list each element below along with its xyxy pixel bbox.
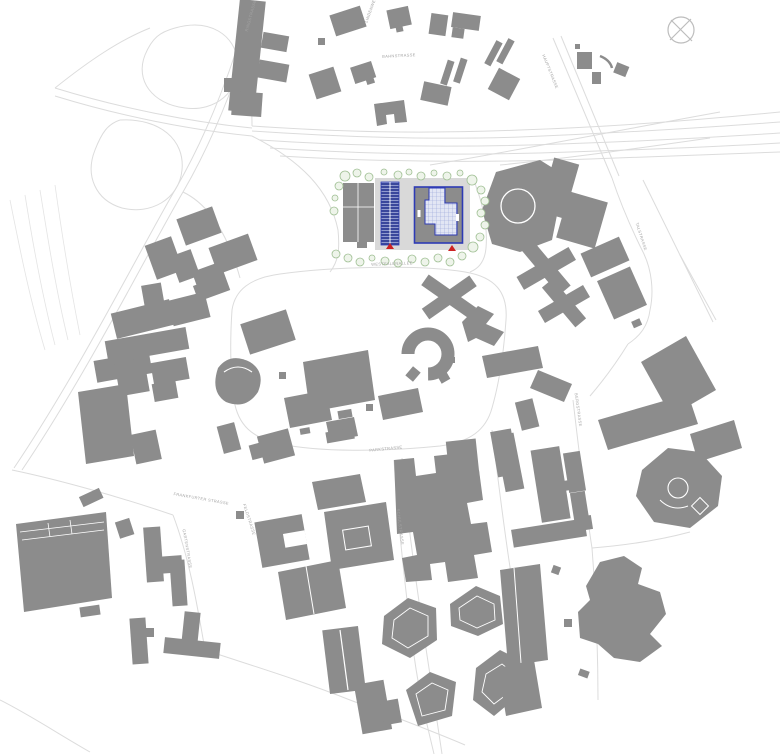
building: [592, 72, 601, 84]
building: [577, 52, 592, 69]
building: [146, 628, 154, 637]
building: [482, 346, 543, 378]
tree-icon: [434, 254, 442, 262]
road: [680, 255, 716, 320]
building: [406, 672, 456, 726]
building: [279, 372, 286, 379]
tree-icon: [356, 258, 364, 266]
building: [79, 488, 104, 507]
tree-icon: [417, 172, 425, 180]
building: [257, 60, 290, 83]
building: [240, 309, 296, 354]
tree-icon: [332, 195, 338, 201]
street-label: PARKSTRASSE: [369, 444, 402, 452]
street-label: LINDENWEG: [364, 0, 378, 23]
building: [224, 78, 236, 92]
street-label: TALSTRASSE: [635, 222, 649, 251]
building: [500, 564, 548, 666]
road: [643, 180, 713, 322]
tree-icon: [421, 258, 429, 266]
building: [382, 598, 437, 658]
tree-icon: [332, 250, 340, 258]
tree-icon: [446, 258, 454, 266]
tree-icon: [330, 207, 338, 215]
street-label: FRANKFURTER STRASSE: [173, 491, 229, 506]
rail-line: [40, 190, 68, 340]
street-label: WESTFALENALLEE: [371, 260, 413, 266]
building: [284, 390, 332, 428]
tree-icon: [458, 252, 466, 260]
tree-icon: [431, 170, 437, 176]
tree-icon: [394, 171, 402, 179]
building: [169, 559, 187, 606]
tree-icon: [365, 173, 373, 181]
building: [181, 611, 200, 644]
building: [515, 398, 539, 430]
building: [449, 357, 455, 363]
building: [79, 605, 100, 618]
building: [278, 560, 346, 620]
project-site: [343, 178, 470, 251]
compass-north-icon: [668, 17, 694, 43]
building: [600, 56, 612, 68]
road: [55, 96, 252, 136]
tree-icon: [353, 169, 361, 177]
tree-icon: [406, 169, 412, 175]
rail-line: [10, 200, 45, 350]
road: [91, 120, 182, 210]
building: [236, 511, 244, 519]
road: [142, 25, 238, 108]
building: [324, 502, 394, 570]
building: [176, 206, 221, 245]
building: [405, 366, 420, 382]
building: [217, 422, 242, 454]
rail-line: [25, 195, 55, 345]
building: [429, 13, 449, 36]
tree-icon: [477, 209, 485, 217]
building: [231, 91, 263, 117]
railway-lines: [10, 185, 80, 350]
building: [578, 556, 666, 662]
tree-icon: [443, 172, 451, 180]
building: [450, 586, 503, 636]
building: [150, 357, 189, 385]
rail-line: [55, 185, 80, 335]
building: [636, 448, 722, 528]
tree-icon: [344, 254, 352, 262]
building: [300, 427, 311, 435]
building: [318, 38, 325, 45]
building: [129, 617, 148, 664]
road: [55, 28, 150, 88]
site-plan-canvas: BAHNSTRASSE LINDENWEG RINGSTRASSE HAUPTS…: [0, 0, 780, 754]
tree-icon: [468, 242, 478, 252]
building: [488, 68, 520, 100]
building: [329, 6, 366, 37]
site-plan-map: BAHNSTRASSE LINDENWEG RINGSTRASSE HAUPTS…: [0, 0, 780, 754]
tree-icon: [467, 175, 477, 185]
street-label: FELDSTRASSE: [242, 503, 257, 536]
building: [261, 32, 289, 52]
tree-icon: [481, 197, 489, 205]
building: [511, 518, 587, 547]
building: [374, 100, 407, 126]
road: [14, 2, 251, 468]
building: [386, 6, 411, 29]
building: [597, 266, 647, 319]
building: [530, 370, 572, 402]
road: [590, 344, 628, 396]
building: [564, 619, 572, 627]
building: [78, 384, 134, 464]
tree-icon: [476, 233, 484, 241]
building: [451, 27, 464, 39]
street-label: HAUPTSTRASSE: [541, 54, 559, 90]
skylight: [418, 210, 421, 217]
building: [130, 430, 162, 465]
tree-icon: [481, 221, 489, 229]
tree-icon: [477, 186, 485, 194]
building: [394, 454, 492, 582]
building: [337, 409, 352, 419]
building: [440, 60, 454, 86]
building: [453, 58, 467, 84]
building: [312, 474, 366, 510]
building: [215, 358, 260, 404]
building: [577, 515, 593, 531]
road: [592, 532, 690, 548]
tree-icon: [457, 170, 463, 176]
tree-icon: [335, 182, 343, 190]
compass-cross: [670, 19, 692, 41]
buildings-layer: [16, 0, 742, 734]
existing-building: [343, 183, 374, 242]
tree-icon: [369, 255, 375, 261]
tree-icon: [340, 171, 350, 181]
tree-icon: [381, 169, 387, 175]
road: [0, 700, 90, 752]
building: [551, 565, 561, 575]
skylight: [456, 214, 459, 221]
street-label: BAHNSTRASSE: [382, 52, 416, 59]
building: [498, 660, 542, 716]
building: [378, 388, 423, 420]
building: [613, 62, 629, 77]
building: [578, 668, 590, 678]
existing-building: [357, 242, 367, 248]
building: [309, 67, 342, 100]
building: [115, 518, 135, 539]
building: [598, 394, 698, 450]
building: [575, 44, 580, 49]
building: [631, 318, 642, 328]
building: [366, 404, 373, 411]
building: [143, 526, 164, 582]
building: [167, 292, 210, 326]
